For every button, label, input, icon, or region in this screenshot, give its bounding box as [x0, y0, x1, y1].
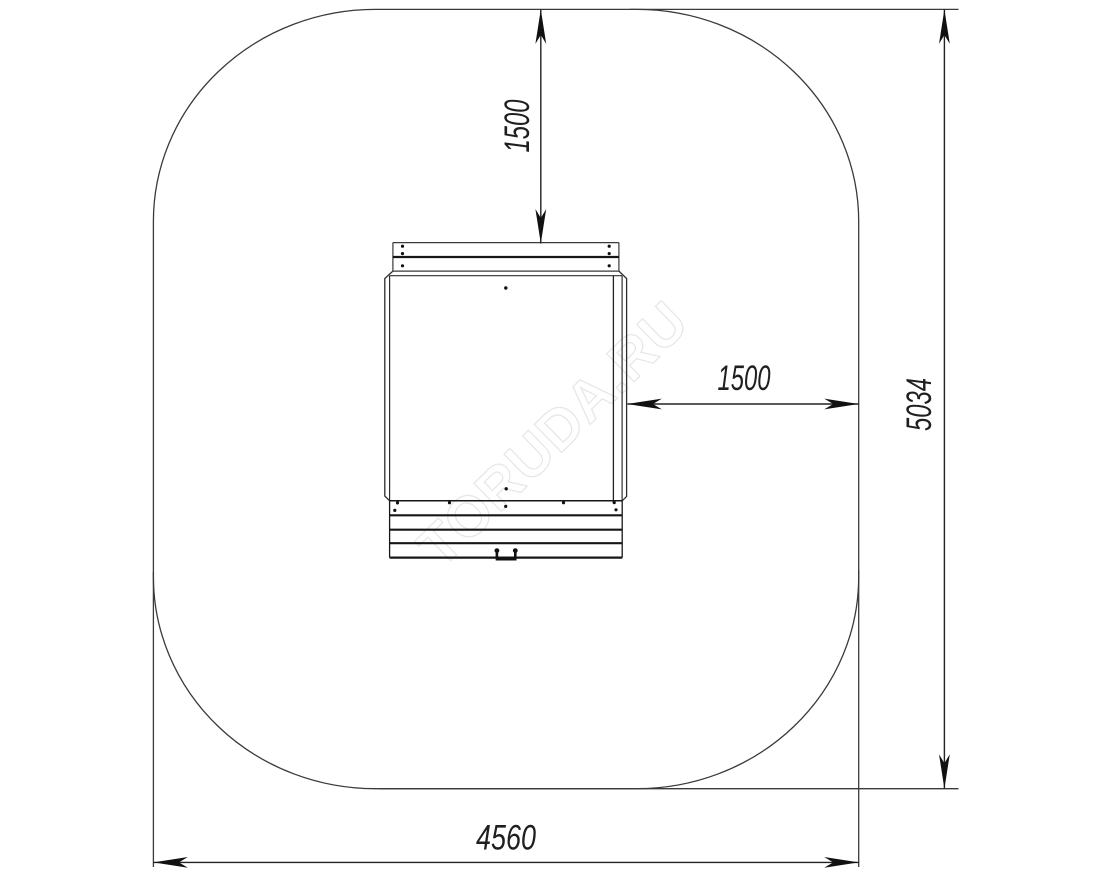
- svg-text:1500: 1500: [718, 359, 771, 398]
- svg-text:4560: 4560: [476, 819, 536, 858]
- svg-text:5034: 5034: [900, 378, 939, 431]
- svg-text:1500: 1500: [498, 99, 537, 152]
